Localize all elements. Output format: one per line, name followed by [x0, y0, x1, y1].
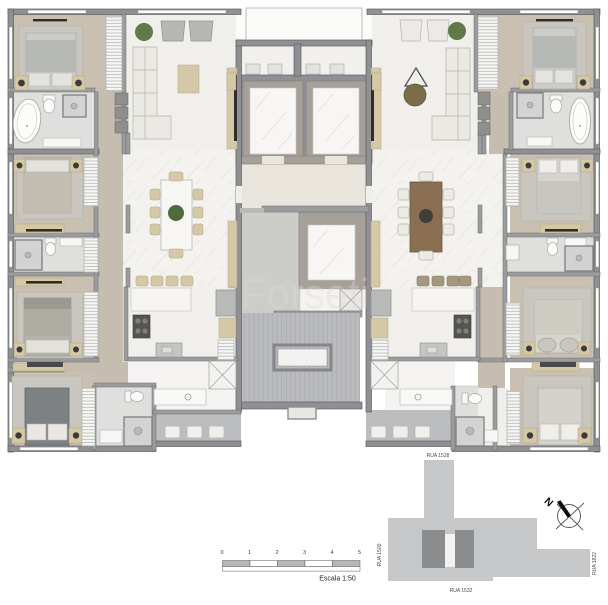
- svg-text:0: 0: [220, 550, 223, 556]
- svg-text:RUA 1500: RUA 1500: [377, 543, 383, 566]
- svg-text:RUA 1528: RUA 1528: [427, 453, 450, 459]
- svg-text:Escala 1:50: Escala 1:50: [319, 576, 356, 583]
- svg-text:RUA 1822: RUA 1822: [592, 552, 598, 575]
- svg-text:1: 1: [248, 550, 251, 556]
- svg-text:RUA 1532: RUA 1532: [450, 588, 473, 594]
- svg-text:2: 2: [275, 550, 278, 556]
- svg-text:3: 3: [303, 550, 306, 556]
- svg-text:Forseti: Forseti: [241, 270, 369, 317]
- svg-text:4: 4: [330, 550, 333, 556]
- svg-text:5: 5: [358, 550, 361, 556]
